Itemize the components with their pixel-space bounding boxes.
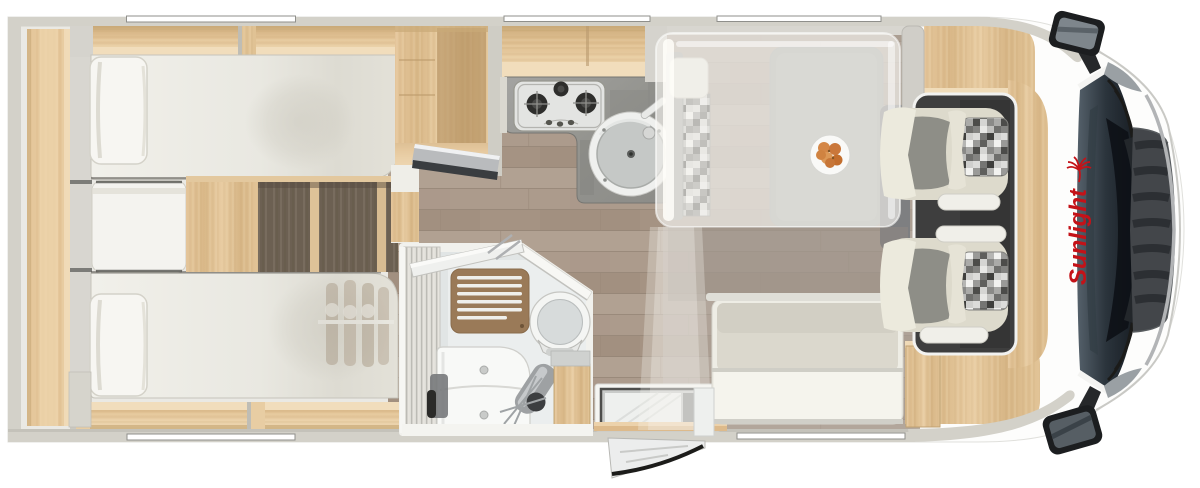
svg-text:Sunlight: Sunlight: [1065, 188, 1092, 285]
